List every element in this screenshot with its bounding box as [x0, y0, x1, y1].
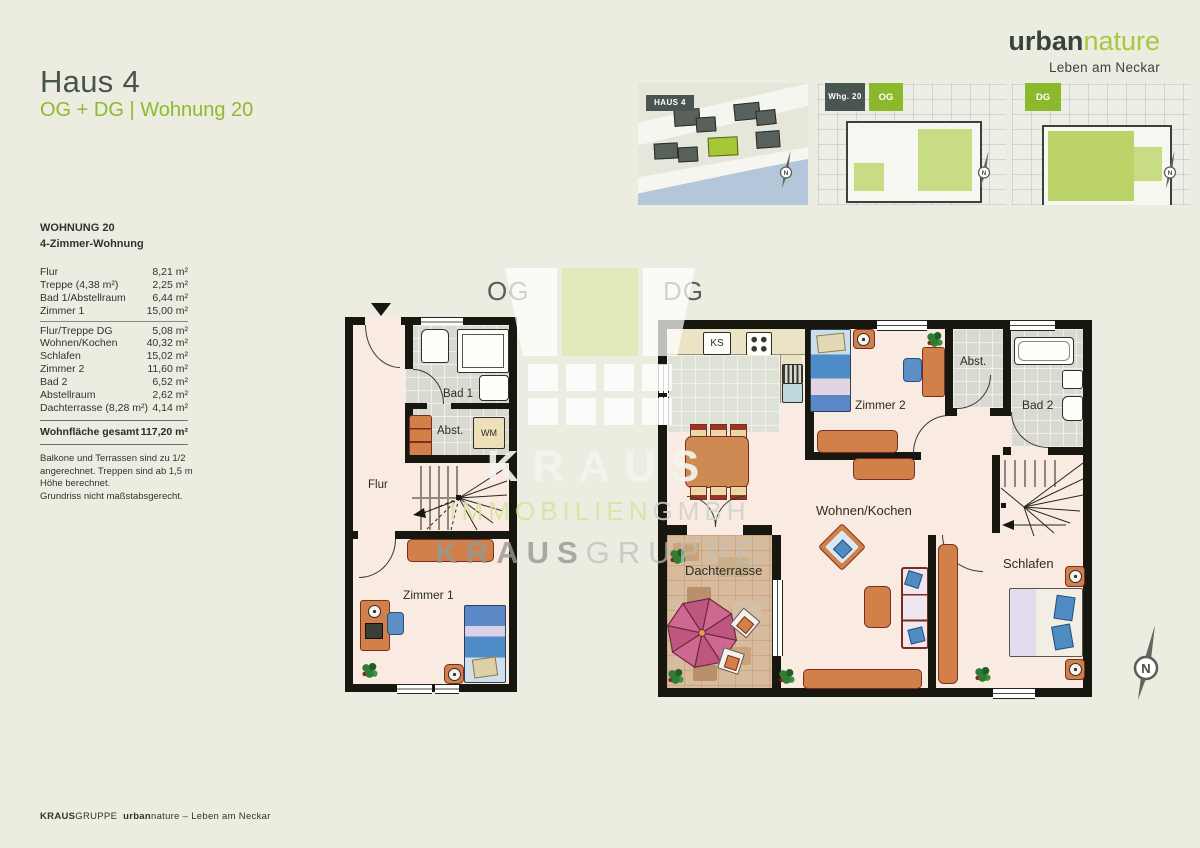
- wall: [395, 531, 509, 539]
- table-row: Bad 1/Abstellraum6,44 m²: [40, 292, 188, 305]
- row-label: Wohnen/Kochen: [40, 337, 117, 350]
- sink: [479, 375, 509, 401]
- nightstand: [444, 664, 464, 684]
- unit-badge: Whg. 20: [825, 83, 865, 111]
- brand-tagline: Leben am Neckar: [1008, 61, 1160, 75]
- plant: [667, 668, 684, 685]
- bed: [810, 329, 851, 412]
- sideboard: [803, 669, 922, 689]
- logo-block: [528, 398, 558, 425]
- sideboard: [407, 539, 494, 562]
- entrance-arrow-icon: [371, 303, 391, 316]
- room-label: Flur: [368, 479, 388, 491]
- apartment-type: 4-Zimmer-Wohnung: [40, 237, 188, 253]
- table-row: Abstellraum2,62 m²: [40, 389, 188, 402]
- apartment-title: WOHNUNG 20: [40, 221, 188, 237]
- brand-wordmark: urbannature: [1008, 28, 1160, 55]
- sink: [1062, 370, 1083, 389]
- brand-nature: nature: [1083, 26, 1160, 56]
- footnote-line: Balkone und Terrassen sind zu 1/2 angere…: [40, 453, 202, 491]
- bed: [464, 605, 506, 683]
- building: [654, 142, 679, 159]
- table-row: Zimmer 115,00 m²: [40, 305, 188, 318]
- footer-kraus: KRAUS: [40, 811, 75, 822]
- bathtub: [1014, 337, 1074, 365]
- washing-machine: WM: [473, 417, 505, 449]
- kitchen-counter: [667, 329, 805, 355]
- room-label: Schlafen: [1003, 556, 1054, 571]
- ks-label: KS: [710, 338, 723, 349]
- brand-logo: urbannature Leben am Neckar: [1008, 28, 1160, 75]
- north-label: N: [1141, 661, 1150, 676]
- footer-gruppe: GRUPPE: [75, 811, 117, 822]
- total-row: Wohnfläche gesamt117,20 m²: [40, 420, 188, 445]
- toilet: [421, 329, 449, 363]
- north-label: N: [784, 170, 789, 177]
- desk: [360, 600, 390, 651]
- window: [435, 684, 459, 694]
- north-label: N: [1168, 170, 1173, 177]
- divider: [40, 321, 188, 322]
- wall: [353, 531, 358, 539]
- nightstand: [1065, 566, 1085, 587]
- pillow: [904, 570, 923, 589]
- row-value: 6,52 m²: [152, 376, 188, 389]
- wall: [667, 525, 687, 535]
- row-label: Schlafen: [40, 350, 81, 363]
- row-label: Flur: [40, 266, 58, 279]
- row-label: Zimmer 2: [40, 363, 84, 376]
- site-badge: HAUS 4: [646, 95, 694, 111]
- window: [772, 580, 783, 656]
- wm-label: WM: [481, 428, 497, 438]
- building: [696, 116, 717, 132]
- drainer: [782, 364, 803, 384]
- north-arrow-icon: N: [776, 149, 794, 191]
- double-bed: [1009, 588, 1083, 657]
- window: [993, 688, 1035, 699]
- area-rows: Flur8,21 m² Treppe (4,38 m²)2,25 m² Bad …: [40, 266, 188, 415]
- footnote-line: Grundriss nicht maßstabsgerecht.: [40, 491, 202, 504]
- room-label: Abst.: [960, 356, 986, 368]
- window: [658, 397, 669, 425]
- plant: [778, 668, 795, 685]
- wall: [1048, 447, 1083, 455]
- total-value: 117,20 m²: [141, 426, 188, 438]
- dining-table: [685, 436, 749, 488]
- logo-block: [604, 364, 634, 391]
- north-label: N: [982, 170, 987, 177]
- row-label: Dachterrasse (8,28 m²): [40, 402, 148, 415]
- logo-block: [566, 364, 596, 391]
- logo-block: [604, 398, 634, 425]
- shower: [457, 329, 509, 373]
- row-value: 4,14 m²: [152, 402, 188, 415]
- table-row: Flur8,21 m²: [40, 266, 188, 279]
- wall: [451, 403, 509, 409]
- desk: [922, 347, 945, 397]
- wall: [945, 408, 957, 416]
- wall: [928, 535, 936, 688]
- room-label: Bad 1: [443, 388, 473, 400]
- brochure-page: Haus 4 OG + DG | Wohnung 20 urbannature …: [0, 0, 1200, 848]
- wall: [1003, 329, 1011, 416]
- highlighted-room: [854, 163, 884, 191]
- logo-block: [566, 398, 596, 425]
- pillow: [1051, 624, 1074, 651]
- row-value: 8,21 m²: [152, 266, 188, 279]
- kitchen-tiles: [667, 355, 780, 432]
- plant: [974, 666, 991, 683]
- thumbnail-site-plan: HAUS 4 N: [638, 83, 808, 205]
- area-table: WOHNUNG 20 4-Zimmer-Wohnung Flur8,21 m² …: [40, 221, 188, 504]
- nightstand: [1065, 659, 1085, 680]
- table-row: Schlafen15,02 m²: [40, 350, 188, 363]
- table-row: Dachterrasse (8,28 m²)4,14 m²: [40, 402, 188, 415]
- chair: [710, 486, 727, 500]
- room-label: Zimmer 2: [855, 398, 906, 412]
- building: [755, 130, 780, 149]
- room-label: Abst.: [437, 425, 463, 437]
- row-value: 6,44 m²: [152, 292, 188, 305]
- floorplan-dg: KS Zimmer 2 Abst.: [658, 320, 1092, 697]
- north-arrow-icon: N: [974, 149, 992, 191]
- plant: [926, 331, 943, 348]
- row-value: 5,08 m²: [152, 325, 188, 338]
- row-value: 40,32 m²: [147, 337, 188, 350]
- wall: [1003, 447, 1011, 455]
- row-label: Bad 2: [40, 376, 67, 389]
- north-arrow-icon: N: [1160, 149, 1178, 191]
- coffee-table: [864, 586, 891, 628]
- wall: [405, 455, 509, 463]
- dg-heading: DG: [663, 276, 704, 307]
- row-label: Abstellraum: [40, 389, 95, 402]
- page-title: Haus 4: [40, 64, 140, 100]
- row-label: Zimmer 1: [40, 305, 84, 318]
- brand-urban: urban: [1008, 26, 1083, 56]
- footer-tagline: – Leben am Neckar: [180, 811, 271, 822]
- highlighted-room: [1048, 131, 1134, 201]
- page-subtitle: OG + DG | Wohnung 20: [40, 99, 253, 122]
- entrance-opening: [365, 317, 401, 325]
- room-label: Zimmer 1: [403, 588, 454, 602]
- row-value: 2,25 m²: [152, 279, 188, 292]
- pillow: [816, 333, 846, 354]
- table-row: Treppe (4,38 m²)2,25 m²: [40, 279, 188, 292]
- sideboard: [853, 458, 915, 480]
- wall: [772, 535, 781, 580]
- row-label: Treppe (4,38 m²): [40, 279, 118, 292]
- table-row: Bad 26,52 m²: [40, 376, 188, 389]
- window: [877, 320, 927, 331]
- pillow: [1053, 595, 1075, 621]
- wall: [405, 325, 413, 369]
- row-value: 11,60 m²: [147, 363, 188, 376]
- logo-block: [528, 364, 558, 391]
- north-arrow-icon: N: [1126, 622, 1162, 704]
- desk-chair: [387, 612, 404, 635]
- floor-badge: OG: [869, 83, 903, 111]
- table-row: Zimmer 211,60 m²: [40, 363, 188, 376]
- room-label: Wohnen/Kochen: [816, 503, 912, 518]
- kitchen-sink: [782, 383, 803, 403]
- row-label: Bad 1/Abstellraum: [40, 292, 126, 305]
- footer-nature: nature: [151, 811, 180, 822]
- table-row: Flur/Treppe DG5,08 m²: [40, 325, 188, 338]
- thumbnail-dg-plan: DG N: [1012, 83, 1190, 205]
- pillow: [907, 626, 925, 644]
- og-heading: OG: [487, 276, 529, 307]
- logo-block: [562, 268, 638, 356]
- row-value: 15,02 m²: [147, 350, 188, 363]
- building: [678, 146, 699, 162]
- highlighted-room: [918, 129, 972, 191]
- shelf: [409, 415, 432, 457]
- wall: [945, 329, 953, 416]
- desk-chair: [903, 358, 922, 382]
- room-label: Bad 2: [1022, 398, 1053, 412]
- thumbnail-og-plan: Whg. 20 OG N: [818, 83, 1006, 205]
- building-highlighted: [708, 136, 739, 157]
- total-label: Wohnfläche gesamt: [40, 426, 139, 438]
- wardrobe: [938, 544, 958, 684]
- sofa: [901, 567, 929, 649]
- plant: [669, 548, 686, 565]
- room-label: Dachterrasse: [685, 563, 762, 578]
- table-row: Wohnen/Kochen40,32 m²: [40, 337, 188, 350]
- stove: [746, 332, 772, 356]
- window: [1010, 320, 1055, 331]
- footer: KRAUSGRUPPE urbannature – Leben am Necka…: [40, 811, 271, 822]
- sideboard: [817, 430, 898, 453]
- staircase: [1000, 459, 1083, 537]
- pillow: [472, 656, 498, 678]
- row-label: Flur/Treppe DG: [40, 325, 113, 338]
- wall: [743, 525, 772, 535]
- toilet: [1062, 396, 1083, 421]
- floorplan-og: Bad 1 Abst. WM Flur Zimmer 1: [345, 317, 517, 692]
- window: [397, 684, 432, 694]
- plant: [361, 662, 378, 679]
- fridge: KS: [703, 332, 731, 355]
- row-value: 15,00 m²: [147, 305, 188, 318]
- floor-badge: DG: [1025, 83, 1061, 111]
- wall: [992, 455, 1000, 533]
- row-value: 2,62 m²: [152, 389, 188, 402]
- window: [658, 365, 669, 393]
- highlighted-room: [1134, 147, 1162, 181]
- staircase: [411, 465, 507, 531]
- footer-urban: urban: [123, 811, 151, 822]
- footnote: Balkone und Terrassen sind zu 1/2 angere…: [40, 453, 202, 504]
- building: [755, 109, 776, 126]
- nightstand: [853, 329, 875, 349]
